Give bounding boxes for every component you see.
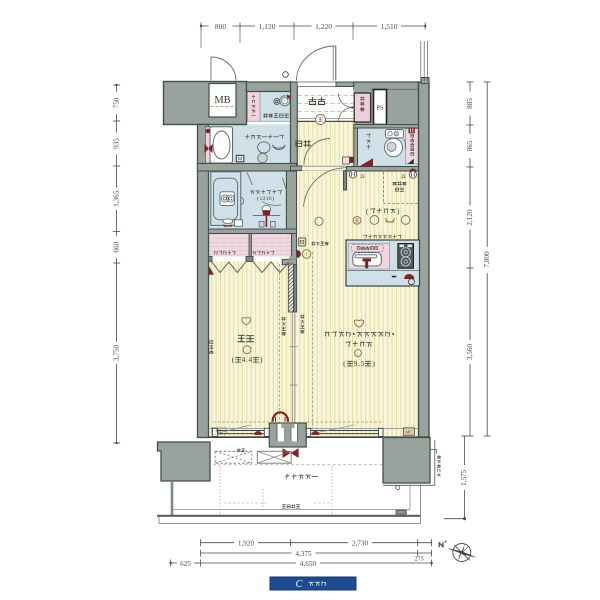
svg-text:625: 625: [180, 560, 191, 568]
svg-text:MB: MB: [214, 95, 230, 106]
svg-text:660: 660: [113, 241, 121, 252]
svg-text:3,750: 3,750: [113, 345, 121, 362]
svg-text:885: 885: [466, 98, 474, 109]
svg-text:MC: MC: [215, 429, 222, 434]
svg-text:5: 5: [361, 359, 365, 368]
svg-text:1,365: 1,365: [113, 190, 121, 207]
svg-text:1,120: 1,120: [259, 22, 276, 31]
svg-text:1,220: 1,220: [315, 22, 332, 31]
svg-text:MC: MC: [405, 429, 412, 434]
svg-text:3,560: 3,560: [466, 344, 474, 361]
svg-text:C: C: [296, 579, 303, 590]
svg-text:1,920: 1,920: [238, 540, 255, 548]
svg-text:4,650: 4,650: [300, 560, 317, 568]
svg-text:M: M: [238, 157, 243, 163]
svg-text:750: 750: [113, 97, 121, 108]
svg-text:2,730: 2,730: [352, 540, 369, 548]
svg-text:935: 935: [113, 138, 121, 149]
svg-text:1,575: 1,575: [460, 469, 468, 486]
svg-text:4: 4: [249, 355, 253, 364]
svg-text:2,120: 2,120: [466, 209, 474, 226]
svg-text:): ): [272, 195, 274, 202]
svg-text:865: 865: [466, 140, 474, 151]
svg-text:4,375: 4,375: [295, 550, 312, 558]
svg-text:1,510: 1,510: [381, 22, 398, 31]
svg-text:PS: PS: [376, 105, 384, 112]
svg-text:2E: 2E: [401, 175, 406, 180]
svg-text:7,800: 7,800: [483, 251, 491, 268]
svg-text:275: 275: [414, 555, 423, 562]
svg-text:6: 6: [269, 196, 272, 202]
svg-text:800: 800: [215, 22, 227, 31]
svg-text:9: 9: [354, 359, 358, 368]
svg-text:2E: 2E: [360, 175, 365, 180]
